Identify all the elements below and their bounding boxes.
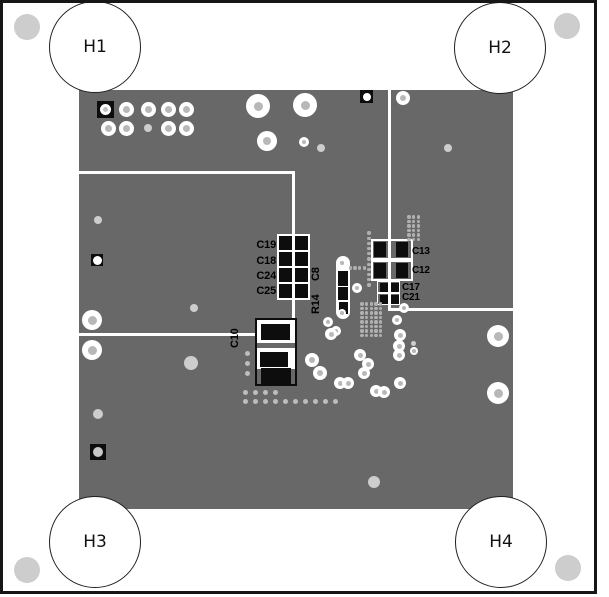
paste-dot <box>360 329 363 332</box>
paste-dot <box>407 229 410 232</box>
paste-dot <box>417 238 420 241</box>
mounting-hole-label: H3 <box>83 532 107 552</box>
paste-dot <box>273 390 278 395</box>
fiducial-dot <box>317 144 325 152</box>
paste-dot <box>243 390 248 395</box>
paste-dot <box>360 307 363 310</box>
paste-dot <box>358 266 361 269</box>
paste-dot <box>365 325 368 328</box>
paste-dot <box>412 238 415 241</box>
paste-dot <box>360 334 363 337</box>
paste-dot <box>253 399 258 404</box>
via-center <box>400 95 406 101</box>
via-center <box>494 332 503 341</box>
via-center <box>340 261 344 265</box>
mounting-hole-h4: H4 <box>455 496 547 588</box>
paste-dot <box>367 283 370 286</box>
mounting-hole-label: H4 <box>489 532 513 552</box>
paste-dot <box>417 233 420 236</box>
via-center <box>366 362 371 367</box>
via-center <box>123 106 130 113</box>
paste-dot <box>367 278 370 281</box>
via-center <box>123 125 130 132</box>
fiducial-dot <box>144 124 152 132</box>
via-center <box>494 389 503 398</box>
paste-dot <box>293 399 298 404</box>
paste-dot <box>374 325 377 328</box>
paste-dot <box>263 390 268 395</box>
via-center <box>309 357 315 363</box>
paste-dot <box>370 329 373 332</box>
paste-dot <box>365 311 368 314</box>
via-center <box>302 140 306 144</box>
paste-dot <box>365 334 368 337</box>
paste-dot <box>407 238 410 241</box>
paste-dot <box>365 320 368 323</box>
paste-dot <box>407 224 410 227</box>
via-center <box>395 318 399 322</box>
via-center <box>183 125 190 132</box>
fiducial-dot <box>190 304 198 312</box>
paste-dot <box>367 247 370 250</box>
via-center <box>346 381 351 386</box>
via-center <box>165 125 172 132</box>
via-center <box>254 102 263 111</box>
via-center <box>402 306 406 310</box>
paste-dot <box>363 266 366 269</box>
paste-dot <box>412 215 415 218</box>
via-center <box>183 106 190 113</box>
via-center <box>362 371 367 376</box>
paste-dot <box>417 224 420 227</box>
paste-dot <box>263 399 268 404</box>
paste-dot <box>367 252 370 255</box>
mounting-hole-h3: H3 <box>49 496 141 588</box>
paste-dot <box>374 307 377 310</box>
paste-dot <box>374 302 377 305</box>
paste-dot <box>407 220 410 223</box>
paste-dot <box>245 351 250 356</box>
paste-dot <box>417 229 420 232</box>
paste-dot <box>379 329 382 332</box>
via-center <box>355 286 359 290</box>
paste-dot <box>379 325 382 328</box>
paste-dot <box>360 325 363 328</box>
via-center <box>301 101 310 110</box>
paste-dot <box>313 399 318 404</box>
via-center <box>340 311 344 315</box>
via-center <box>398 333 403 338</box>
via-center <box>358 353 363 358</box>
paste-dot <box>374 320 377 323</box>
paste-dot <box>374 334 377 337</box>
paste-dot <box>417 220 420 223</box>
via-center <box>412 349 416 353</box>
via-center <box>165 106 172 113</box>
via-center <box>397 344 402 349</box>
paste-dot <box>360 311 363 314</box>
paste-dot <box>360 316 363 319</box>
paste-dot <box>333 399 338 404</box>
paste-dot <box>353 266 356 269</box>
via-center <box>398 381 403 386</box>
paste-dot <box>367 231 370 234</box>
paste-dot <box>379 307 382 310</box>
paste-dot <box>412 229 415 232</box>
via-center <box>105 125 112 132</box>
paste-dot <box>303 399 308 404</box>
paste-dot <box>360 302 363 305</box>
paste-dot <box>370 334 373 337</box>
paste-dot <box>412 220 415 223</box>
pcb-top-assembly-view: C19 C18 C24 C25 C13 C12 C17 C21 C8 R14 C… <box>0 0 609 597</box>
via-center <box>397 353 402 358</box>
paste-dot <box>412 224 415 227</box>
paste-dot <box>407 215 410 218</box>
paste-dot <box>379 320 382 323</box>
fiducial-dot <box>444 144 452 152</box>
paste-dot <box>365 307 368 310</box>
paste-dot <box>365 329 368 332</box>
fiducial-dot <box>94 216 102 224</box>
mounting-hole-label: H1 <box>83 37 107 57</box>
paste-dot <box>370 320 373 323</box>
paste-dot <box>367 242 370 245</box>
paste-dot <box>370 311 373 314</box>
paste-dot <box>370 302 373 305</box>
paste-dot <box>273 399 278 404</box>
fiducial-dot <box>14 14 40 40</box>
via-center <box>329 332 334 337</box>
mounting-hole-label: H2 <box>488 38 512 58</box>
via-center <box>145 106 152 113</box>
paste-dot <box>349 266 352 269</box>
via-center <box>326 320 330 324</box>
paste-dot <box>245 361 250 366</box>
via-center <box>382 390 387 395</box>
paste-dot <box>370 325 373 328</box>
paste-dot <box>417 215 420 218</box>
paste-dot <box>253 390 258 395</box>
via-center <box>88 346 97 355</box>
paste-dot <box>245 371 250 376</box>
fiducial-dot <box>368 476 380 488</box>
mounting-hole-h2: H2 <box>454 2 546 94</box>
paste-dot <box>367 257 370 260</box>
paste-dot <box>407 233 410 236</box>
paste-dot <box>374 311 377 314</box>
paste-dot <box>283 399 288 404</box>
fiducial-dot <box>184 356 198 370</box>
paste-dot <box>365 316 368 319</box>
paste-dot <box>374 329 377 332</box>
paste-dot <box>367 273 370 276</box>
paste-dot <box>412 233 415 236</box>
via-center <box>317 370 323 376</box>
via-center <box>263 137 271 145</box>
via-center <box>88 316 97 325</box>
paste-dot <box>367 263 370 266</box>
paste-dot <box>323 399 328 404</box>
paste-dot <box>370 307 373 310</box>
paste-dot <box>370 316 373 319</box>
fiducial-dot <box>14 557 40 583</box>
paste-dot <box>379 311 382 314</box>
paste-dot <box>360 320 363 323</box>
paste-dot <box>365 302 368 305</box>
fiducial-dot <box>411 341 416 346</box>
paste-dot <box>374 316 377 319</box>
paste-dot <box>379 302 382 305</box>
paste-dot <box>243 399 248 404</box>
paste-dot <box>367 268 370 271</box>
paste-dot <box>367 237 370 240</box>
fiducial-dot <box>93 409 103 419</box>
paste-dot <box>379 316 382 319</box>
fiducial-dot <box>555 555 581 581</box>
paste-dot <box>379 334 382 337</box>
mounting-hole-h1: H1 <box>49 1 141 93</box>
fiducial-dot <box>554 13 580 39</box>
